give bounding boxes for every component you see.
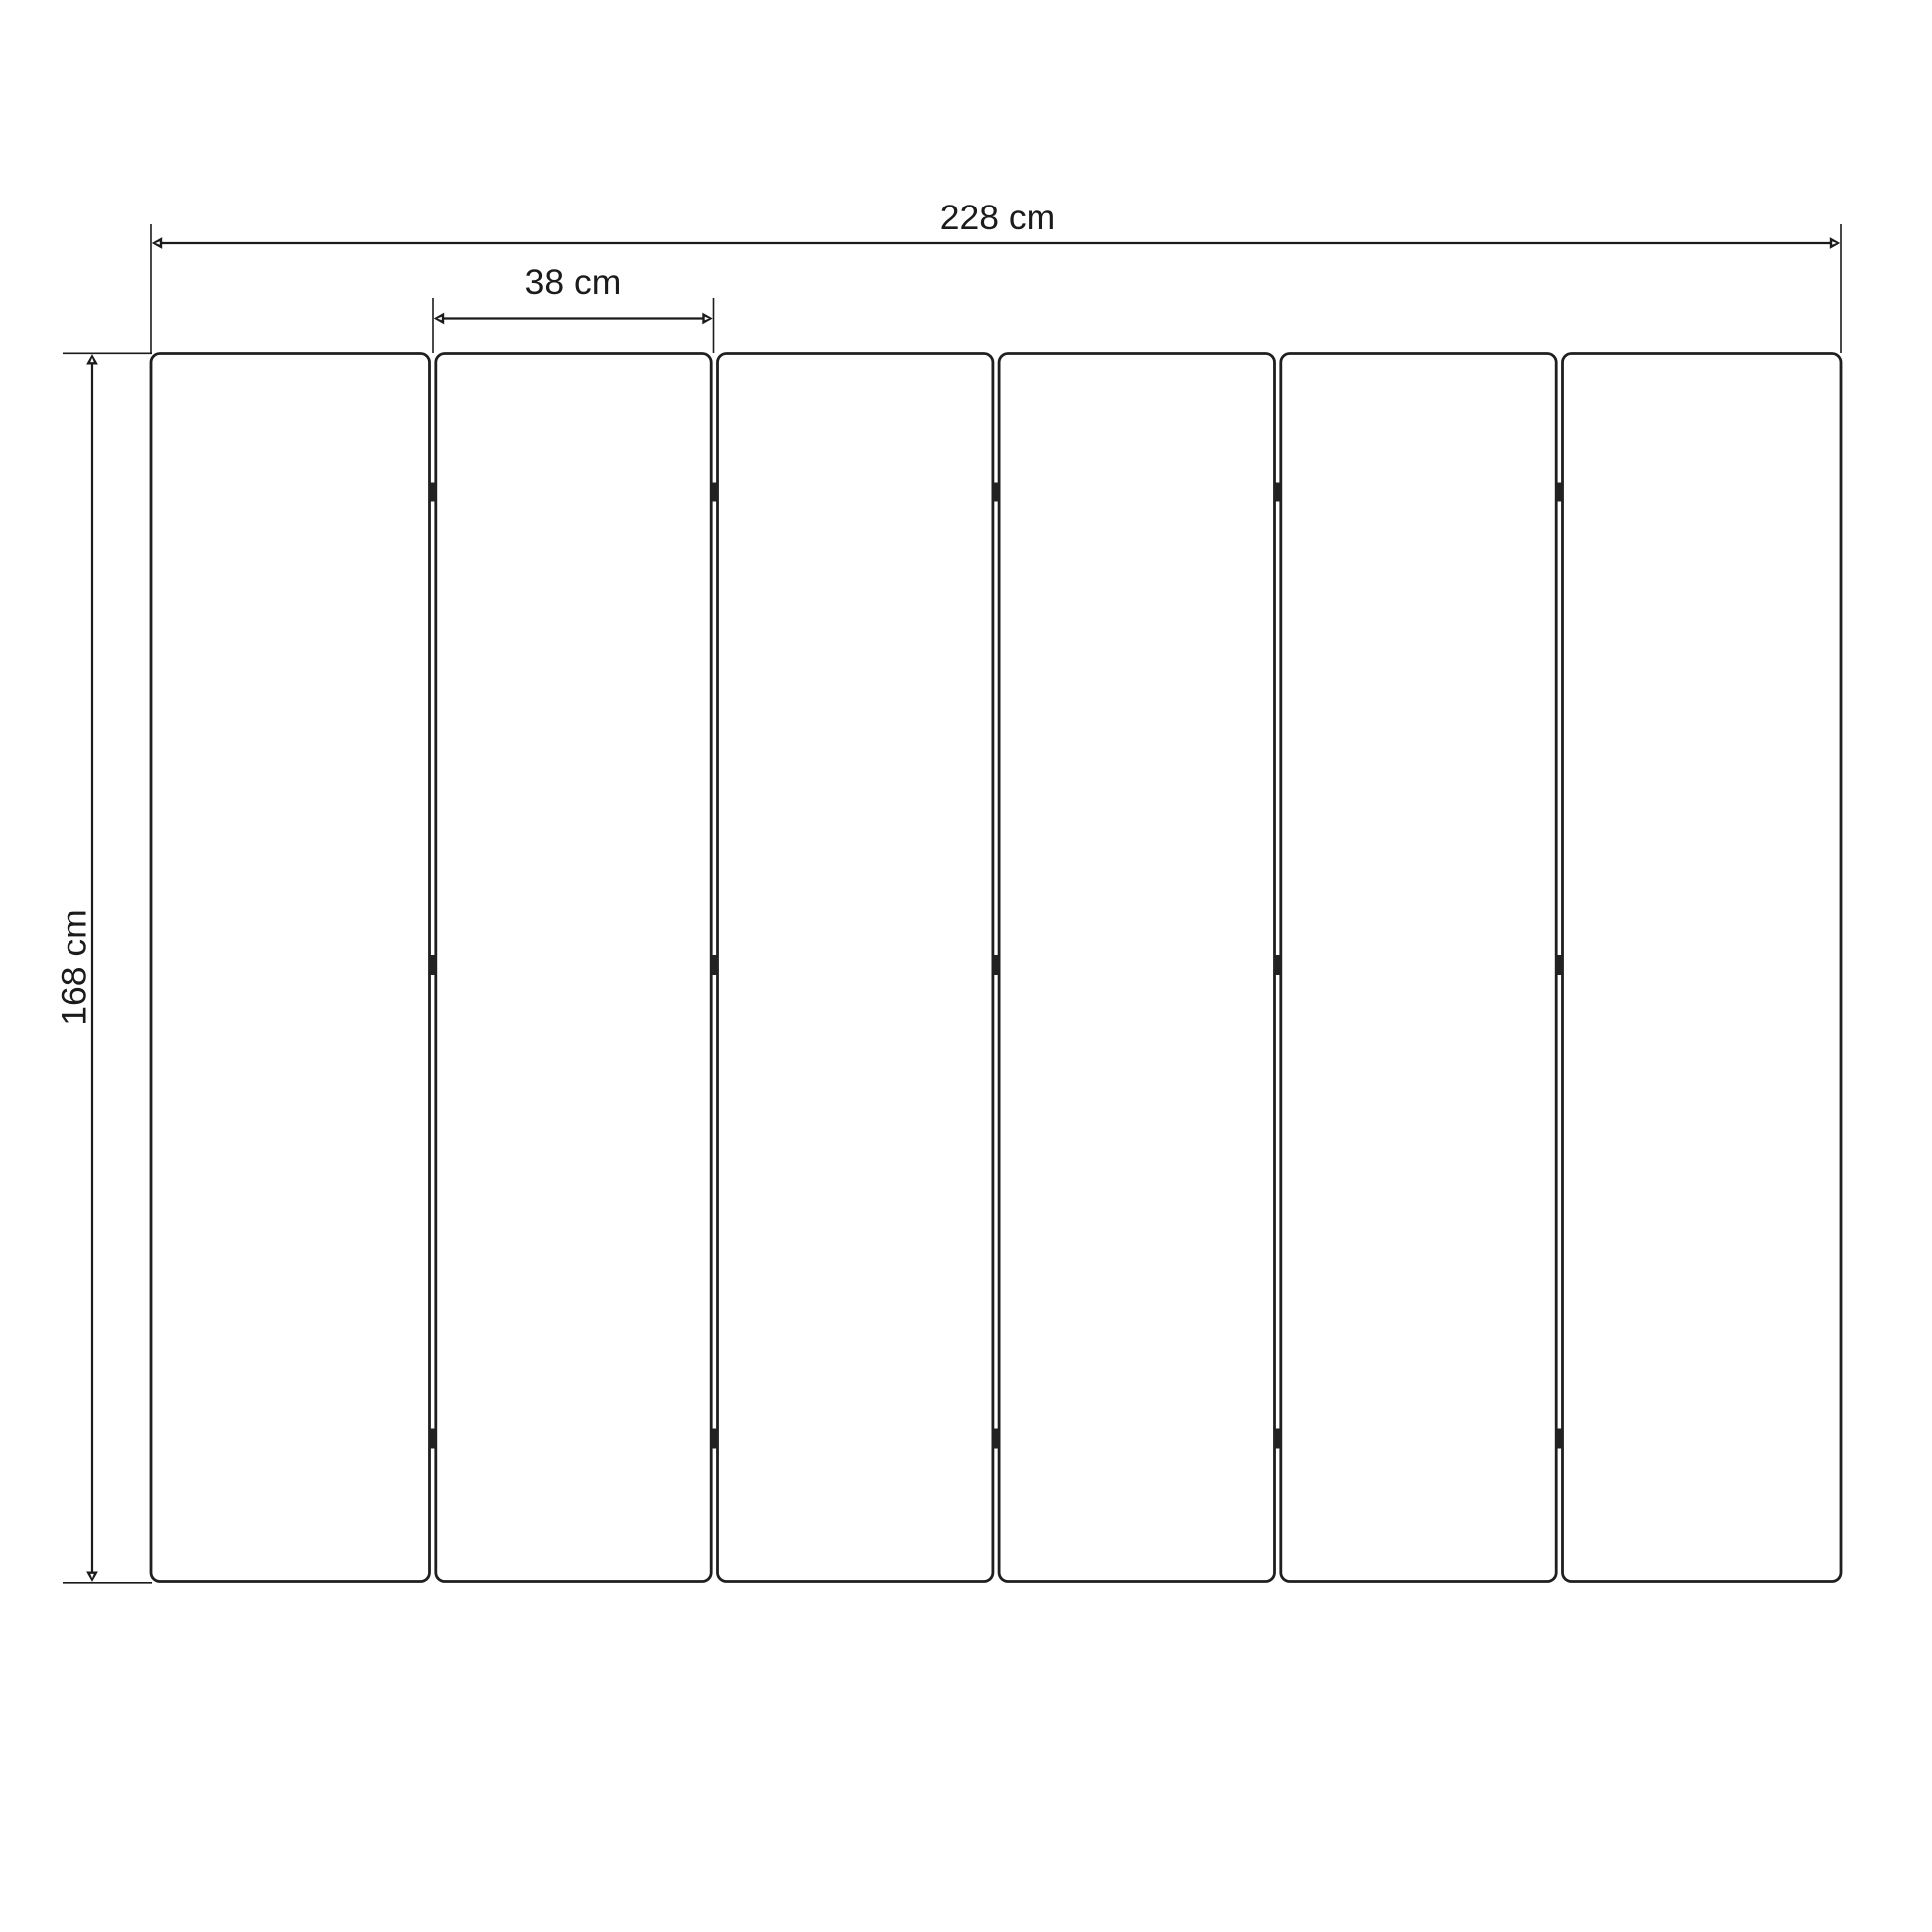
svg-text:168 cm: 168 cm <box>55 909 94 1025</box>
svg-text:228 cm: 228 cm <box>940 198 1055 237</box>
svg-text:38 cm: 38 cm <box>525 262 621 302</box>
